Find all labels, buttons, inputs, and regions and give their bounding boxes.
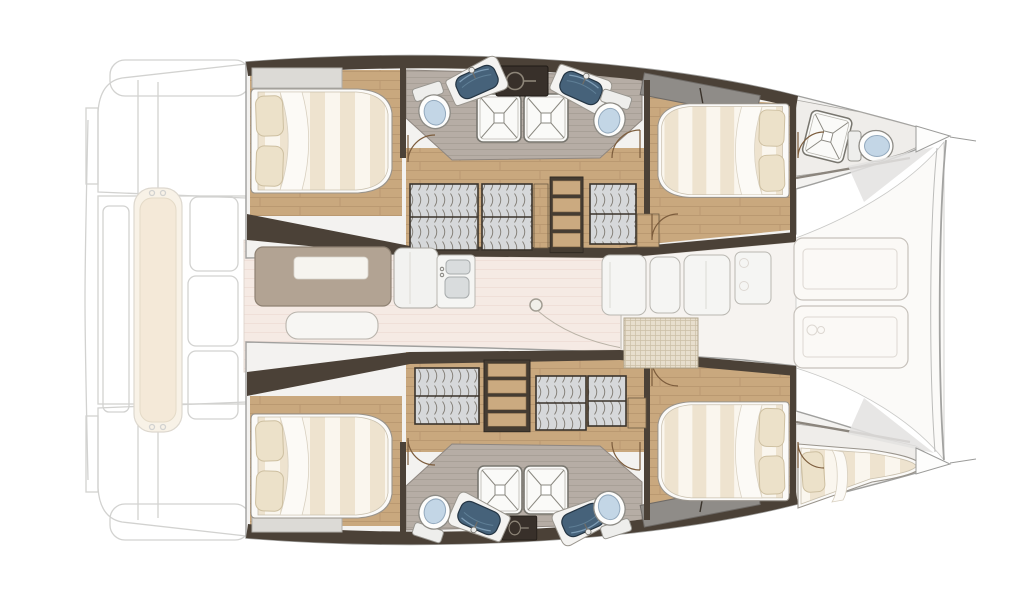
floor-plan-canvas bbox=[0, 0, 1024, 600]
transom-step-lines-port bbox=[138, 80, 158, 197]
cockpit-panel bbox=[190, 197, 238, 271]
port-bulkhead-aft bbox=[400, 66, 406, 158]
side-deck-panel bbox=[103, 206, 129, 412]
stbd-side-shelf bbox=[628, 398, 646, 428]
port-aft-shower bbox=[477, 94, 521, 142]
galley-counter bbox=[394, 248, 438, 308]
galley-faucet bbox=[440, 273, 444, 277]
stbd-wardrobe-2 bbox=[536, 376, 586, 430]
galley-faucet bbox=[440, 267, 444, 271]
starboard-bow-tip bbox=[916, 448, 950, 474]
sink-bowl bbox=[446, 260, 470, 274]
port-bulkhead-forepeak bbox=[790, 98, 796, 234]
cockpit-panel bbox=[188, 276, 238, 346]
port-bowsprit-line bbox=[950, 137, 976, 141]
port-forward-berth bbox=[658, 104, 789, 198]
stbd-bulkhead-aft bbox=[400, 442, 406, 534]
galley-cabinet-row bbox=[602, 255, 730, 315]
port-aft-headboard-shelf bbox=[252, 68, 342, 88]
stbd-staircase bbox=[484, 360, 530, 432]
stbd-wardrobe-3 bbox=[588, 376, 626, 426]
mast-post bbox=[530, 299, 542, 311]
galley-cabinet bbox=[650, 257, 680, 313]
stbd-bulkhead-mid bbox=[644, 350, 650, 520]
woven-deck-hatch bbox=[624, 318, 698, 368]
port-side-shelf bbox=[637, 214, 659, 247]
port-stair-side-panel bbox=[534, 184, 548, 248]
port-forward-shower bbox=[524, 94, 568, 142]
stern-cockpit-ghost bbox=[85, 60, 250, 540]
table-tray bbox=[294, 257, 368, 279]
forepeak-pillow bbox=[801, 451, 826, 492]
starboard-bowsprit-line bbox=[950, 459, 976, 463]
catamaran-floor-plan bbox=[0, 0, 1024, 600]
sunpad-cushion bbox=[140, 198, 176, 422]
port-forepeak-toilet bbox=[848, 131, 893, 162]
cockpit-panel bbox=[188, 351, 238, 419]
stbd-forward-shower bbox=[524, 466, 568, 514]
galley-cabinet bbox=[684, 255, 730, 315]
stbd-wardrobe-1 bbox=[415, 368, 479, 424]
port-wardrobe-2 bbox=[482, 184, 532, 250]
transom-steps-port bbox=[98, 64, 246, 198]
stbd-bulkhead-forepeak bbox=[790, 366, 796, 502]
stbd-forward-berth bbox=[658, 402, 789, 501]
stbd-aft-berth bbox=[251, 414, 392, 518]
port-staircase bbox=[550, 177, 583, 253]
forward-lounge-cushion-starboard bbox=[794, 306, 908, 368]
sofa-bench bbox=[286, 312, 378, 339]
port-wardrobe-1 bbox=[410, 184, 478, 250]
fridge-unit bbox=[735, 252, 771, 304]
port-aft-berth bbox=[251, 89, 392, 193]
port-wardrobe-3 bbox=[590, 184, 636, 244]
sink-bowl bbox=[445, 277, 469, 298]
forward-lounge-cushion-port bbox=[794, 238, 908, 300]
galley-cabinet bbox=[602, 255, 646, 315]
